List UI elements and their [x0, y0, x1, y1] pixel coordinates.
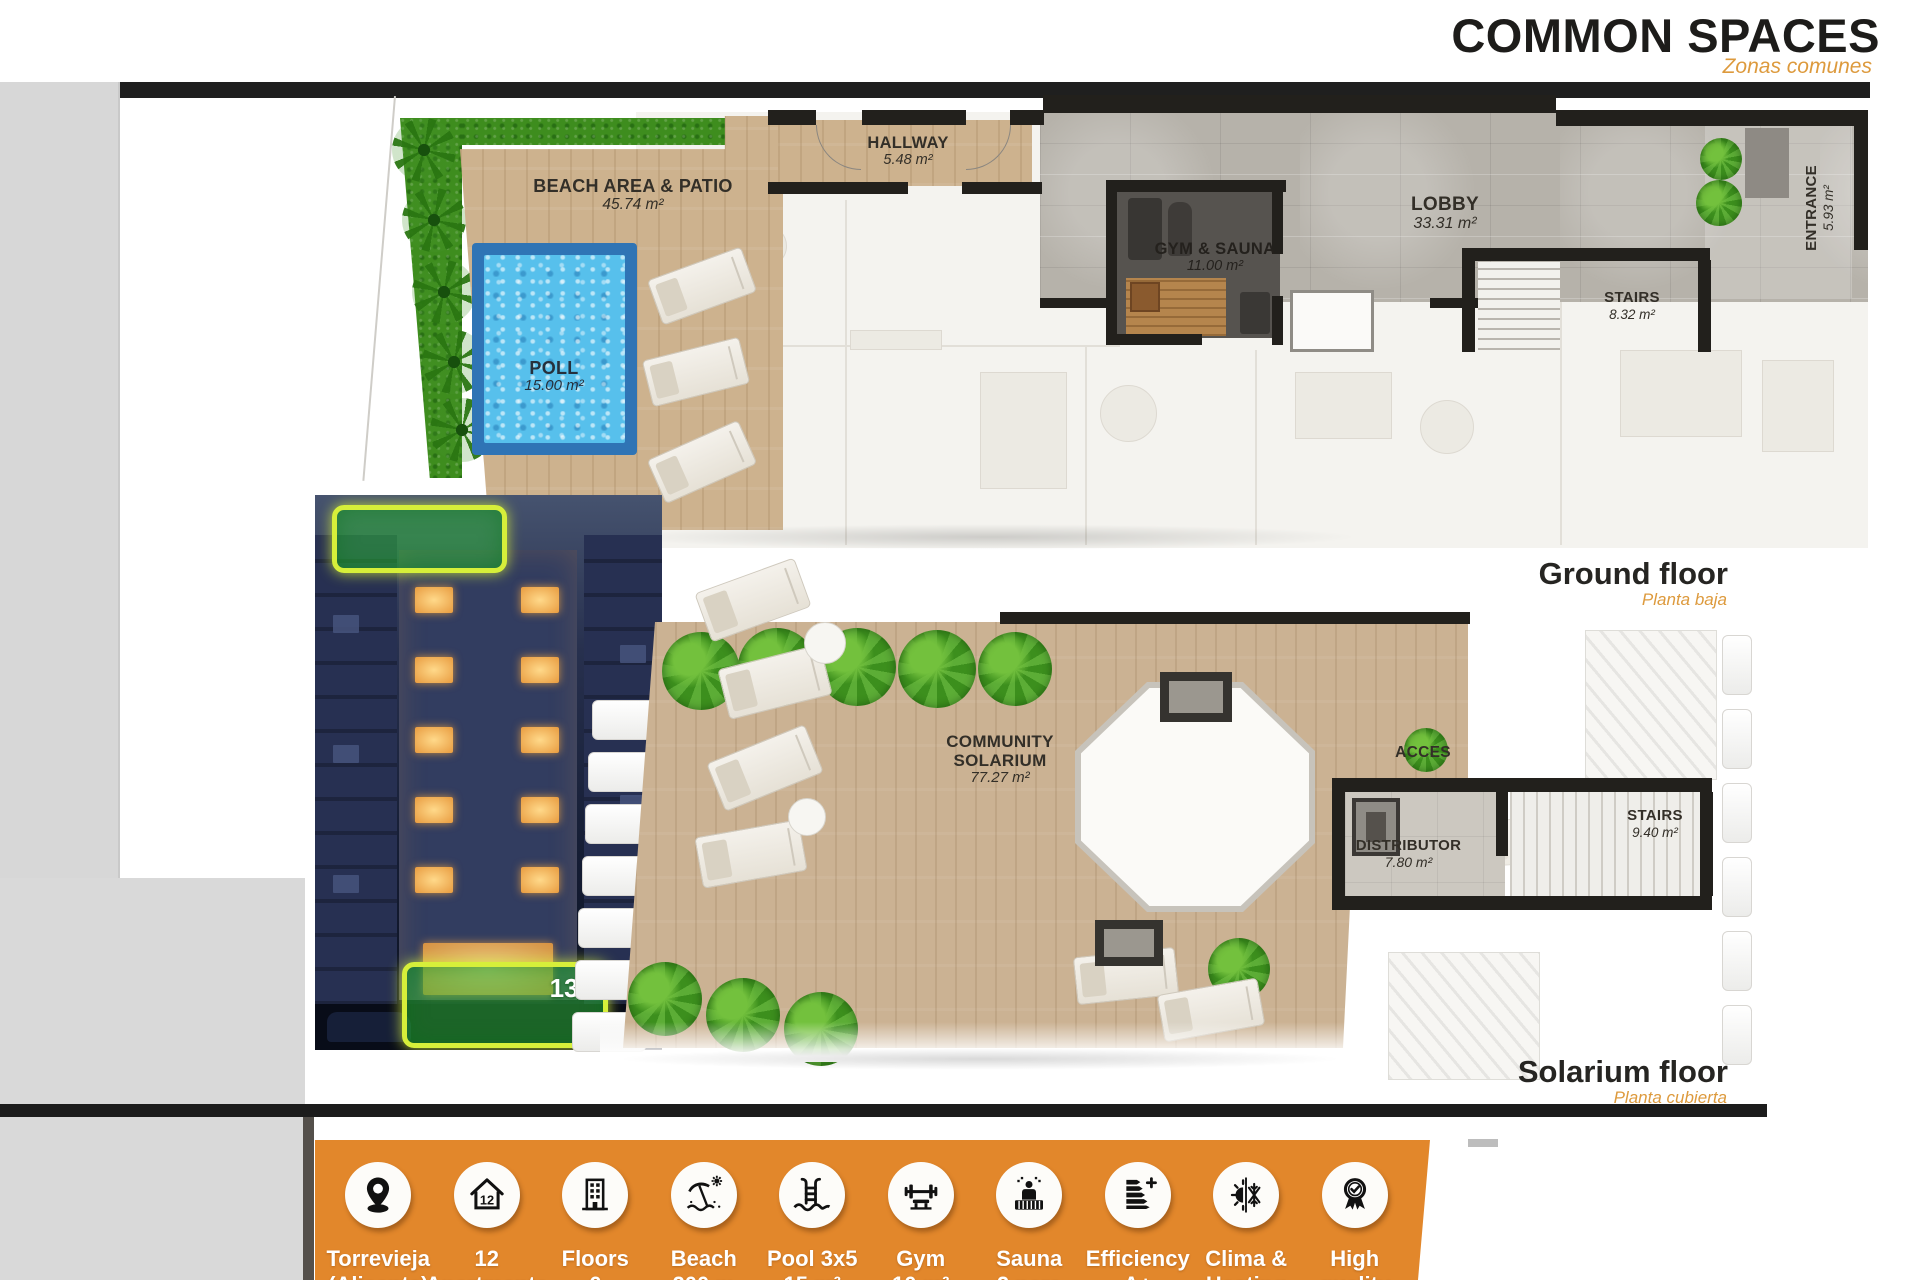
- room-label-distributor: DISTRIBUTOR 7.80 m²: [1336, 838, 1481, 870]
- gray-dash: [1468, 1139, 1498, 1147]
- sauna-icon: [996, 1162, 1062, 1228]
- feature-beach: Beach 200 m: [650, 1162, 759, 1280]
- room-label-entrance: ENTRANCE 5.93 m²: [1804, 148, 1836, 268]
- furniture-outline: [850, 330, 942, 350]
- wall-segment: [1496, 792, 1508, 856]
- furniture-outline: [980, 372, 1067, 489]
- room-divider-line: [1560, 300, 1562, 545]
- wall-segment: [1106, 180, 1286, 192]
- room-label-beach-area: BEACH AREA & PATIO 45.74 m²: [513, 176, 753, 214]
- furniture-outline: [1762, 360, 1834, 452]
- side-table: [804, 622, 846, 664]
- wall-segment: [1332, 778, 1712, 792]
- feature-apartments: 12 12 Apartments: [433, 1162, 542, 1280]
- plan-shadow: [615, 1048, 1345, 1070]
- entrance-mat: [1745, 128, 1789, 198]
- terrace-slat: [1722, 709, 1752, 769]
- planter-box: [1160, 672, 1232, 722]
- wall-segment: [1556, 110, 1868, 126]
- feature-floors: Floors 6: [541, 1162, 650, 1280]
- location-pin-icon: [345, 1162, 411, 1228]
- feature-quality: High quality: [1301, 1162, 1410, 1280]
- wall-segment: [1272, 296, 1283, 345]
- feature-pool: Pool 3x5 15 m²: [758, 1162, 867, 1280]
- plan-shadow: [620, 524, 1360, 550]
- solarium-floor-caption: Solarium floor: [1518, 1054, 1728, 1090]
- wall-segment: [862, 110, 966, 125]
- feature-sauna: Sauna 2 pers: [975, 1162, 1084, 1280]
- terrace-slat: [1722, 635, 1752, 695]
- terrace-slat: [1722, 931, 1752, 991]
- climate-icon: [1213, 1162, 1279, 1228]
- furniture-outline: [1100, 385, 1157, 442]
- plant-icon: [1700, 138, 1742, 180]
- terrace-slat: [1722, 783, 1752, 843]
- beach-icon: [671, 1162, 737, 1228]
- wall-segment: [1106, 192, 1117, 344]
- bottom-divider-bar: [0, 1104, 1767, 1117]
- room-label-lobby: LOBBY 33.31 m²: [1385, 194, 1505, 233]
- features-bar: Torrevieja (Alicante) 12 12 Apartments F…: [315, 1140, 1430, 1280]
- wall-segment: [1043, 95, 1556, 113]
- efficiency-icon: [1105, 1162, 1171, 1228]
- furniture-outline: [1295, 372, 1392, 439]
- gym-equipment: [1240, 292, 1270, 334]
- ground-floor-plan: BEACH AREA & PATIO 45.74 m² HALLWAY 5.48…: [0, 0, 1920, 620]
- wall-segment: [1000, 612, 1470, 624]
- feature-climate: Clima & Heating: [1192, 1162, 1301, 1280]
- bush-icon: [978, 632, 1052, 706]
- plant-icon: [1696, 180, 1742, 226]
- staircase-ground: [1478, 262, 1560, 350]
- wall-segment: [1462, 261, 1475, 352]
- feature-efficiency: Efficiency A+: [1084, 1162, 1193, 1280]
- room-label-gym-sauna: GYM & SAUNA 11.00 m²: [1125, 240, 1305, 275]
- wall-segment: [1462, 248, 1710, 261]
- brochure-page: { "header": {"title": "COMMON SPACES", "…: [0, 0, 1920, 1280]
- terrace-slat: [1722, 857, 1752, 917]
- wall-segment: [1106, 334, 1202, 345]
- palm-tree-icon: [402, 188, 466, 252]
- building-icon: [562, 1162, 628, 1228]
- room-label-stairs-ground: STAIRS 8.32 m²: [1572, 290, 1692, 322]
- room-label-acces: ACCES: [1378, 744, 1468, 761]
- furniture-outline: [1420, 400, 1474, 454]
- gym-icon: [888, 1162, 954, 1228]
- wall-segment: [962, 182, 1042, 194]
- solarium-floor-plan: COMMUNITY SOLARIUM 77.27 m² ACCES DISTRI…: [0, 560, 1920, 1120]
- award-icon: [1322, 1162, 1388, 1228]
- furniture-outline: [1620, 350, 1742, 437]
- plot-boundary-line: [362, 96, 396, 481]
- wall-segment: [1010, 110, 1044, 125]
- svg-text:12: 12: [480, 1192, 494, 1207]
- sauna-mosaic: [1130, 282, 1160, 312]
- bush-icon: [898, 630, 976, 708]
- room-divider-line: [1085, 345, 1087, 545]
- side-table: [788, 798, 826, 836]
- house-12-icon: 12: [454, 1162, 520, 1228]
- room-label-pool: POLL 15.00 m²: [494, 358, 614, 395]
- wall-segment: [1854, 126, 1868, 250]
- dark-edge-dash: [303, 1115, 314, 1280]
- wall-segment: [768, 110, 816, 125]
- palm-tree-icon: [412, 260, 476, 324]
- room-divider-line: [1255, 350, 1257, 545]
- feature-gym: Gym 10 m²: [867, 1162, 976, 1280]
- pool-icon: [779, 1162, 845, 1228]
- wall-segment: [1698, 260, 1711, 352]
- room-label-hallway: HALLWAY 5.48 m²: [838, 134, 978, 169]
- feature-location: Torrevieja (Alicante): [324, 1162, 433, 1280]
- room-label-community-solarium: COMMUNITY SOLARIUM 77.27 m²: [920, 732, 1080, 787]
- palm-tree-icon: [392, 118, 456, 182]
- terrace-stairs-top-right: [1585, 630, 1717, 780]
- wall-segment: [1332, 896, 1712, 910]
- room-label-stairs-solarium: STAIRS 9.40 m²: [1600, 808, 1710, 840]
- elevator-shaft: [1290, 290, 1374, 352]
- room-divider-line: [845, 200, 847, 545]
- planter-box: [1095, 920, 1163, 966]
- pool-water: [484, 255, 625, 443]
- wall-segment: [768, 182, 908, 194]
